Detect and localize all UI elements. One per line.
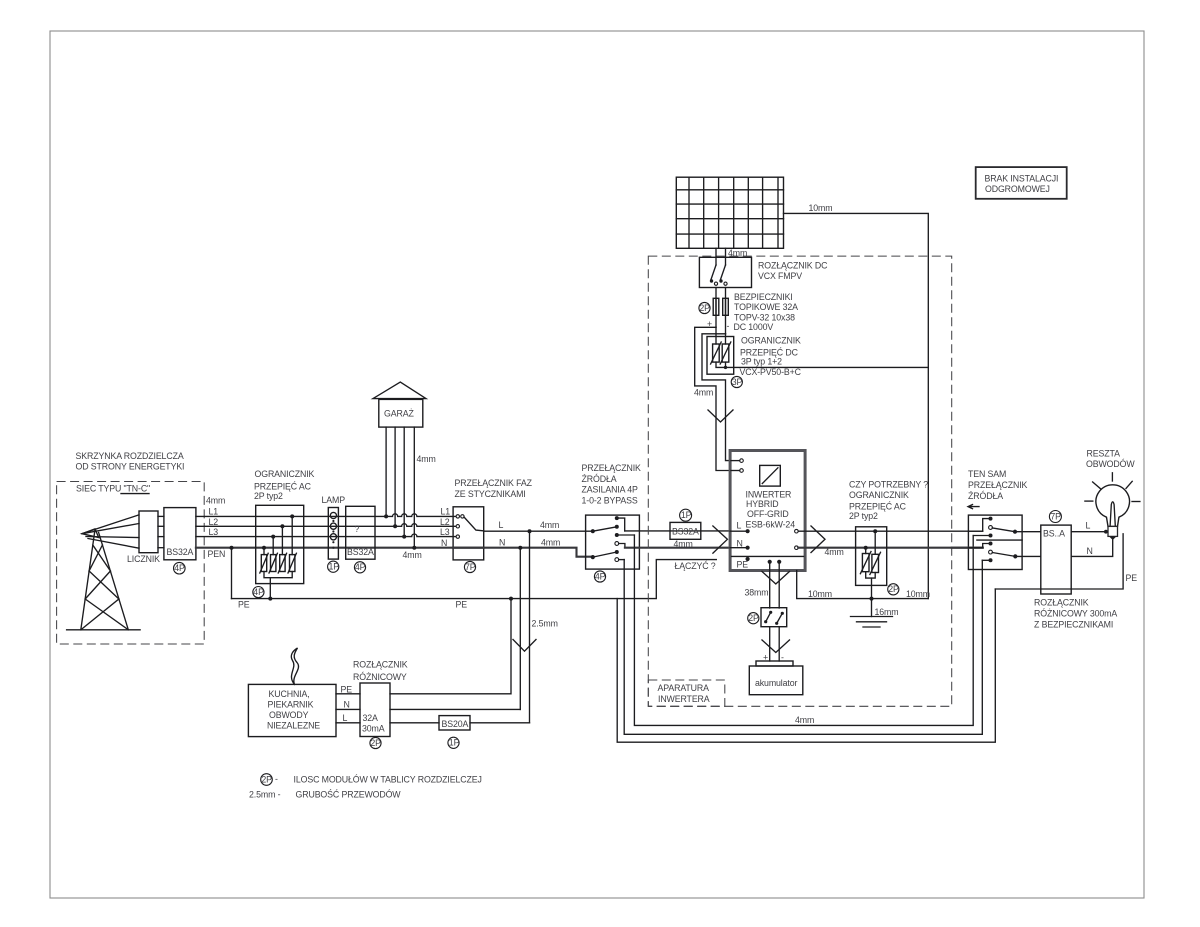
svg-text:1P: 1P <box>329 562 340 572</box>
svg-text:L1: L1 <box>209 507 219 517</box>
svg-text:32A: 32A <box>363 713 379 723</box>
svg-text:4mm: 4mm <box>825 547 844 557</box>
svg-text:RÓŻNICOWY: RÓŻNICOWY <box>353 672 407 682</box>
svg-text:PE: PE <box>456 600 468 610</box>
svg-text:L3: L3 <box>440 527 450 537</box>
svg-text:DC 1000V: DC 1000V <box>734 322 774 332</box>
svg-text:INWERTER: INWERTER <box>746 490 792 500</box>
svg-text:1P: 1P <box>681 510 692 520</box>
svg-text:VCX-PV50-B+C: VCX-PV50-B+C <box>740 367 802 377</box>
svg-text:2P typ2: 2P typ2 <box>254 491 283 501</box>
svg-text:2P: 2P <box>699 303 710 313</box>
svg-text:4mm: 4mm <box>541 538 560 548</box>
svg-text:3P typ 1+2: 3P typ 1+2 <box>741 357 782 367</box>
svg-text:PE: PE <box>341 685 353 695</box>
svg-text:2P: 2P <box>370 738 381 748</box>
svg-text:2P: 2P <box>748 613 759 623</box>
svg-text:OGRANICZNIK: OGRANICZNIK <box>255 469 315 479</box>
svg-text:L2: L2 <box>440 517 450 527</box>
svg-text:NIEZALEZNE: NIEZALEZNE <box>267 721 320 731</box>
svg-text:GARAŻ: GARAŻ <box>384 409 414 419</box>
svg-text:KUCHNIA,: KUCHNIA, <box>269 689 310 699</box>
svg-text:PRZEŁĄCZNIK: PRZEŁĄCZNIK <box>968 480 1028 490</box>
svg-text:2P: 2P <box>888 584 899 594</box>
svg-text:LICZNIK: LICZNIK <box>127 554 160 564</box>
svg-text:BS32A: BS32A <box>167 547 194 557</box>
svg-text:ROZŁĄCZNIK DC: ROZŁĄCZNIK DC <box>758 261 828 271</box>
svg-text:TOPV-32 10x38: TOPV-32 10x38 <box>734 312 795 322</box>
svg-text:VCX FMPV: VCX FMPV <box>758 271 802 281</box>
svg-text:L3: L3 <box>209 527 219 537</box>
svg-text:ŹRÓDŁA: ŹRÓDŁA <box>582 474 617 484</box>
svg-text:ROZŁĄCZNIK: ROZŁĄCZNIK <box>1034 598 1089 608</box>
svg-text:ILOSC MODUŁÓW W TABLICY ROZDZI: ILOSC MODUŁÓW W TABLICY ROZDZIELCZEJ <box>294 775 482 785</box>
svg-text:L: L <box>499 520 504 530</box>
svg-text:akumulator: akumulator <box>755 678 798 688</box>
svg-text:4mm: 4mm <box>417 454 436 464</box>
svg-text:4mm: 4mm <box>728 248 747 258</box>
svg-text:ŁĄCZYĆ ?: ŁĄCZYĆ ? <box>675 561 716 571</box>
svg-text:10mm: 10mm <box>906 589 930 599</box>
svg-text:N: N <box>737 539 743 549</box>
svg-text:BS32A: BS32A <box>347 547 374 557</box>
svg-text:4mm: 4mm <box>795 715 814 725</box>
svg-text:L2: L2 <box>209 517 219 527</box>
svg-text:RESZTA: RESZTA <box>1087 449 1121 459</box>
svg-text:16mm: 16mm <box>875 607 899 617</box>
svg-text:SKRZYNKA ROZDZIELCZA: SKRZYNKA ROZDZIELCZA <box>76 451 184 461</box>
svg-text:L: L <box>343 713 348 723</box>
svg-text:N: N <box>1087 546 1093 556</box>
svg-text:L: L <box>737 521 742 531</box>
svg-text:-: - <box>727 321 730 331</box>
svg-text:4P: 4P <box>355 562 366 572</box>
svg-text:4P: 4P <box>595 571 606 581</box>
svg-text:2P typ2: 2P typ2 <box>849 511 878 521</box>
svg-text:30mA: 30mA <box>362 724 385 734</box>
svg-text:GRUBOŚĆ PRZEWODÓW: GRUBOŚĆ PRZEWODÓW <box>296 789 402 800</box>
svg-text:CZY POTRZEBNY ?: CZY POTRZEBNY ? <box>849 480 928 490</box>
svg-text:SIEC TYPU "TN-C": SIEC TYPU "TN-C" <box>76 484 150 494</box>
svg-text:L1: L1 <box>441 507 451 517</box>
svg-text:4mm: 4mm <box>540 520 559 530</box>
svg-text:38mm: 38mm <box>745 588 769 598</box>
svg-text:ODGROMOWEJ: ODGROMOWEJ <box>985 184 1050 194</box>
svg-text:Z BEZPIECZNIKAMI: Z BEZPIECZNIKAMI <box>1034 620 1113 630</box>
svg-text:3P: 3P <box>732 377 743 387</box>
svg-text:PE: PE <box>1126 573 1138 583</box>
svg-text:ESB-6kW-24: ESB-6kW-24 <box>746 520 796 530</box>
svg-text:PE: PE <box>238 600 250 610</box>
svg-text:4mm: 4mm <box>206 496 225 506</box>
svg-text:OGRANICZNIK: OGRANICZNIK <box>849 490 909 500</box>
svg-text:-: - <box>275 774 278 784</box>
svg-text:BS20A: BS20A <box>442 719 469 729</box>
svg-text:4mm: 4mm <box>694 388 713 398</box>
svg-text:APARATURA: APARATURA <box>658 683 710 693</box>
svg-text:N: N <box>441 538 447 548</box>
svg-text:ŹRÓDŁA: ŹRÓDŁA <box>968 491 1003 501</box>
svg-text:N: N <box>344 700 350 710</box>
svg-text:OBWODY: OBWODY <box>269 710 309 720</box>
svg-text:7P: 7P <box>1050 511 1061 521</box>
svg-text:2P: 2P <box>261 774 272 784</box>
svg-text:RÓŻNICOWY 300mA: RÓŻNICOWY 300mA <box>1034 609 1117 619</box>
svg-text:10mm: 10mm <box>808 589 832 599</box>
svg-text:10mm: 10mm <box>809 203 833 213</box>
svg-text:4mm: 4mm <box>403 550 422 560</box>
svg-text:N: N <box>499 538 505 548</box>
svg-text:LAMP: LAMP <box>322 495 346 505</box>
svg-text:PEN: PEN <box>208 549 226 559</box>
svg-text:4P: 4P <box>253 587 264 597</box>
svg-text:BEZPIECZNIKI: BEZPIECZNIKI <box>734 292 793 302</box>
svg-text:PIEKARNIK: PIEKARNIK <box>268 700 314 710</box>
svg-text:BS32A: BS32A <box>672 527 699 537</box>
svg-text:PRZEŁĄCZNIK FAZ: PRZEŁĄCZNIK FAZ <box>455 478 533 488</box>
svg-text:ROZŁĄCZNIK: ROZŁĄCZNIK <box>353 660 408 670</box>
svg-text:2.5mm -: 2.5mm - <box>249 790 281 800</box>
svg-text:1-0-2 BYPASS: 1-0-2 BYPASS <box>582 496 638 506</box>
svg-text:TEN SAM: TEN SAM <box>968 469 1006 479</box>
svg-text:PE: PE <box>737 560 749 570</box>
svg-text:BS..A: BS..A <box>1043 529 1065 539</box>
svg-text:HYBRID: HYBRID <box>746 499 779 509</box>
svg-text:4mm: 4mm <box>674 539 693 549</box>
svg-text:TOPIKOWE 32A: TOPIKOWE 32A <box>734 302 798 312</box>
svg-text:PRZEPIĘĆ AC: PRZEPIĘĆ AC <box>849 502 907 512</box>
svg-text:ZE STYCZNIKAMI: ZE STYCZNIKAMI <box>455 489 526 499</box>
svg-text:7P: 7P <box>465 562 476 572</box>
svg-text:PRZEŁĄCZNIK: PRZEŁĄCZNIK <box>582 463 642 473</box>
svg-text:4P: 4P <box>174 563 185 573</box>
svg-text:OD STRONY ENERGETYKI: OD STRONY ENERGETYKI <box>76 462 185 472</box>
svg-text:OBWODÓW: OBWODÓW <box>1086 459 1135 469</box>
svg-text:2.5mm: 2.5mm <box>532 619 558 629</box>
svg-text:L: L <box>1086 521 1091 531</box>
svg-text:BRAK INSTALACJI: BRAK INSTALACJI <box>985 174 1059 184</box>
svg-text:1P: 1P <box>449 738 460 748</box>
svg-text:?: ? <box>355 524 360 534</box>
svg-text:INWERTERA: INWERTERA <box>658 694 710 704</box>
svg-text:ZASILANIA 4P: ZASILANIA 4P <box>582 485 639 495</box>
svg-text:OGRANICZNIK: OGRANICZNIK <box>741 336 801 346</box>
svg-text:OFF-GRID: OFF-GRID <box>747 509 789 519</box>
